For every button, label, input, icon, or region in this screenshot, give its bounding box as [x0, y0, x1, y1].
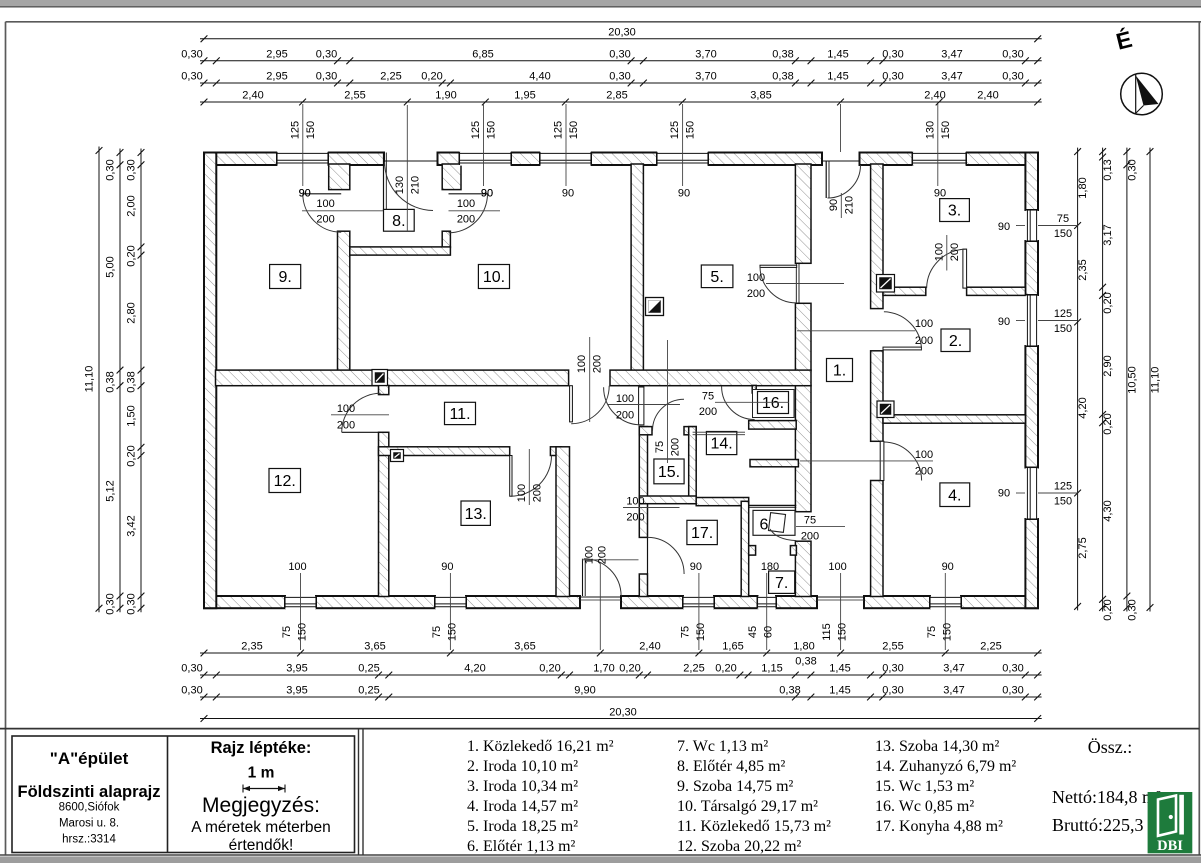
svg-text:3,70: 3,70: [695, 71, 716, 83]
svg-text:1,45: 1,45: [829, 663, 850, 675]
svg-text:10. Társalgó 29,17 m²: 10. Társalgó 29,17 m²: [677, 798, 818, 815]
svg-text:2,75: 2,75: [1077, 537, 1089, 558]
svg-text:0,20: 0,20: [1102, 599, 1114, 620]
svg-text:2.: 2.: [949, 333, 962, 350]
svg-text:Földszinti alaprajz: Földszinti alaprajz: [17, 783, 160, 801]
svg-text:0,30: 0,30: [1002, 663, 1023, 675]
svg-text:0,30: 0,30: [882, 49, 903, 61]
svg-text:0,30: 0,30: [1002, 71, 1023, 83]
svg-text:11,10: 11,10: [84, 366, 96, 393]
svg-text:17. Konyha 4,88 m²: 17. Konyha 4,88 m²: [875, 818, 1003, 835]
svg-text:Rajz léptéke:: Rajz léptéke:: [211, 739, 312, 757]
svg-text:200: 200: [531, 484, 543, 502]
svg-text:Össz.:: Össz.:: [1088, 737, 1133, 757]
svg-text:200: 200: [457, 214, 475, 226]
svg-text:6,85: 6,85: [472, 49, 493, 61]
svg-text:2,40: 2,40: [242, 90, 263, 102]
svg-text:4. Iroda 14,57 m²: 4. Iroda 14,57 m²: [467, 798, 578, 815]
svg-text:200: 200: [592, 355, 604, 373]
svg-text:1 m: 1 m: [248, 765, 275, 782]
svg-text:90: 90: [441, 561, 453, 573]
svg-text:1,95: 1,95: [514, 90, 535, 102]
svg-text:9,90: 9,90: [574, 685, 595, 697]
svg-text:150: 150: [940, 121, 952, 139]
svg-text:100: 100: [288, 561, 306, 573]
svg-text:200: 200: [626, 512, 644, 524]
svg-text:150: 150: [297, 623, 309, 641]
svg-text:90: 90: [299, 188, 311, 200]
svg-text:0,20: 0,20: [539, 663, 560, 675]
svg-text:3,95: 3,95: [286, 685, 307, 697]
svg-text:75: 75: [281, 626, 293, 638]
svg-text:15. Wc 1,53 m²: 15. Wc 1,53 m²: [875, 778, 974, 795]
svg-text:100: 100: [828, 561, 846, 573]
svg-text:100: 100: [915, 318, 933, 330]
svg-text:180: 180: [761, 561, 779, 573]
svg-text:2,90: 2,90: [1102, 355, 1114, 376]
svg-text:200: 200: [747, 288, 765, 300]
svg-text:130: 130: [924, 121, 936, 139]
svg-text:1.: 1.: [833, 363, 846, 380]
svg-text:12.: 12.: [274, 473, 296, 490]
svg-text:0,38: 0,38: [795, 656, 816, 668]
svg-text:0,30: 0,30: [181, 71, 202, 83]
svg-text:0,30: 0,30: [1002, 685, 1023, 697]
svg-text:0,25: 0,25: [358, 685, 379, 697]
svg-text:200: 200: [616, 410, 634, 422]
svg-text:0,30: 0,30: [126, 159, 138, 180]
svg-text:90: 90: [942, 561, 954, 573]
svg-text:130: 130: [394, 176, 406, 194]
svg-text:3,65: 3,65: [364, 641, 385, 653]
svg-text:125: 125: [553, 121, 565, 139]
svg-text:125: 125: [669, 121, 681, 139]
svg-text:14.: 14.: [710, 436, 732, 453]
svg-text:150: 150: [568, 121, 580, 139]
svg-text:0,30: 0,30: [1002, 49, 1023, 61]
svg-text:5,00: 5,00: [105, 256, 117, 277]
svg-text:150: 150: [446, 623, 458, 641]
svg-text:13.: 13.: [465, 506, 487, 523]
svg-text:1,80: 1,80: [1077, 177, 1089, 198]
svg-text:0,38: 0,38: [105, 371, 117, 392]
svg-text:2,95: 2,95: [266, 49, 287, 61]
svg-text:3. Iroda 10,34 m²: 3. Iroda 10,34 m²: [467, 778, 578, 795]
svg-text:90: 90: [998, 488, 1010, 500]
svg-text:3,42: 3,42: [126, 515, 138, 536]
svg-text:0,20: 0,20: [1102, 413, 1114, 434]
svg-text:125: 125: [470, 121, 482, 139]
svg-text:1,45: 1,45: [827, 49, 848, 61]
svg-text:200: 200: [597, 546, 609, 564]
svg-text:4.: 4.: [948, 487, 961, 504]
svg-text:0,20: 0,20: [715, 663, 736, 675]
svg-text:90: 90: [934, 188, 946, 200]
svg-text:Marosi u. 8.: Marosi u. 8.: [59, 818, 119, 830]
svg-text:200: 200: [699, 406, 717, 418]
svg-text:1,50: 1,50: [126, 405, 138, 426]
svg-text:150: 150: [941, 623, 953, 641]
svg-text:3,70: 3,70: [695, 49, 716, 61]
svg-text:4,30: 4,30: [1102, 500, 1114, 521]
svg-text:125: 125: [1054, 308, 1072, 320]
svg-text:0,30: 0,30: [609, 71, 630, 83]
svg-text:3,85: 3,85: [750, 90, 771, 102]
svg-text:15.: 15.: [658, 464, 680, 481]
svg-text:2,25: 2,25: [683, 663, 704, 675]
svg-text:200: 200: [801, 531, 819, 543]
svg-text:100: 100: [516, 484, 528, 502]
svg-text:150: 150: [305, 121, 317, 139]
svg-text:200: 200: [316, 214, 334, 226]
svg-text:3,47: 3,47: [941, 49, 962, 61]
svg-text:0,30: 0,30: [181, 685, 202, 697]
svg-text:150: 150: [1054, 323, 1072, 335]
svg-text:150: 150: [685, 121, 697, 139]
svg-text:2,00: 2,00: [126, 195, 138, 216]
svg-text:150: 150: [1054, 496, 1072, 508]
svg-text:3,65: 3,65: [514, 641, 535, 653]
svg-text:11.: 11.: [449, 406, 470, 423]
svg-text:20,30: 20,30: [608, 27, 636, 39]
svg-text:8. Előtér 4,85 m²: 8. Előtér 4,85 m²: [677, 758, 786, 775]
svg-text:75: 75: [926, 626, 938, 638]
svg-text:6. Előtér 1,13 m²: 6. Előtér 1,13 m²: [467, 838, 576, 855]
svg-text:0,20: 0,20: [421, 71, 442, 83]
svg-text:8.: 8.: [392, 213, 405, 230]
svg-text:3,47: 3,47: [943, 685, 964, 697]
svg-text:75: 75: [654, 441, 666, 453]
svg-text:2,55: 2,55: [882, 641, 903, 653]
svg-text:200: 200: [915, 335, 933, 347]
svg-text:100: 100: [616, 393, 634, 405]
svg-text:5,12: 5,12: [105, 480, 117, 501]
svg-text:75: 75: [431, 626, 443, 638]
svg-text:16. Wc 0,85 m²: 16. Wc 0,85 m²: [875, 798, 974, 815]
svg-text:17.: 17.: [691, 525, 713, 542]
svg-text:9. Szoba 14,75 m²: 9. Szoba 14,75 m²: [677, 778, 794, 795]
svg-text:11. Közlekedő 15,73 m²: 11. Közlekedő 15,73 m²: [677, 818, 831, 835]
svg-text:12. Szoba 20,22 m²: 12. Szoba 20,22 m²: [677, 838, 802, 855]
svg-text:90: 90: [998, 316, 1010, 328]
svg-text:90: 90: [998, 221, 1010, 233]
svg-text:11,10: 11,10: [1150, 367, 1162, 394]
svg-text:3,17: 3,17: [1102, 224, 1114, 245]
svg-text:100: 100: [316, 198, 334, 210]
svg-text:14. Zuhanyzó 6,79 m²: 14. Zuhanyzó 6,79 m²: [875, 758, 1016, 775]
svg-text:0,30: 0,30: [181, 49, 202, 61]
svg-text:7.: 7.: [775, 575, 788, 592]
svg-text:75: 75: [702, 390, 714, 402]
svg-text:5. Iroda 18,25 m²: 5. Iroda 18,25 m²: [467, 818, 578, 835]
svg-text:0,30: 0,30: [882, 71, 903, 83]
svg-text:2,85: 2,85: [606, 90, 627, 102]
svg-text:1,15: 1,15: [761, 663, 782, 675]
svg-text:200: 200: [915, 466, 933, 478]
svg-text:210: 210: [409, 176, 421, 194]
svg-text:0,30: 0,30: [105, 159, 117, 180]
svg-text:3.: 3.: [948, 203, 961, 220]
svg-text:100: 100: [933, 243, 945, 261]
svg-text:0,20: 0,20: [1102, 292, 1114, 313]
svg-text:60: 60: [763, 626, 775, 638]
svg-text:20,30: 20,30: [609, 707, 637, 719]
svg-text:100: 100: [576, 355, 588, 373]
svg-text:75: 75: [1057, 213, 1069, 225]
svg-text:0,30: 0,30: [126, 593, 138, 614]
svg-text:0,38: 0,38: [779, 685, 800, 697]
svg-text:1,65: 1,65: [722, 641, 743, 653]
svg-text:9.: 9.: [278, 269, 291, 286]
svg-text:0,20: 0,20: [619, 663, 640, 675]
svg-text:100: 100: [584, 546, 596, 564]
svg-text:0,25: 0,25: [358, 663, 379, 675]
svg-text:0,30: 0,30: [609, 49, 630, 61]
svg-text:1. Közlekedő 16,21 m²: 1. Közlekedő 16,21 m²: [467, 738, 614, 755]
svg-text:90: 90: [562, 188, 574, 200]
svg-text:150: 150: [837, 623, 849, 641]
svg-text:8600,Siófok: 8600,Siófok: [59, 802, 120, 814]
svg-text:45: 45: [747, 626, 759, 638]
svg-text:10.: 10.: [483, 269, 505, 286]
svg-text:2,40: 2,40: [924, 90, 945, 102]
svg-text:200: 200: [949, 243, 961, 261]
svg-text:4,40: 4,40: [529, 71, 550, 83]
svg-text:150: 150: [1054, 228, 1072, 240]
svg-text:3,47: 3,47: [941, 71, 962, 83]
svg-text:2,25: 2,25: [980, 641, 1001, 653]
svg-text:115: 115: [821, 623, 833, 641]
svg-text:1,70: 1,70: [593, 663, 614, 675]
svg-text:90: 90: [828, 199, 840, 211]
svg-text:125: 125: [1054, 481, 1072, 493]
svg-text:0,38: 0,38: [126, 371, 138, 392]
svg-text:150: 150: [486, 121, 498, 139]
svg-text:1,45: 1,45: [829, 685, 850, 697]
svg-text:100: 100: [626, 496, 644, 508]
svg-text:75: 75: [679, 626, 691, 638]
svg-text:6: 6: [760, 517, 769, 534]
svg-text:1,45: 1,45: [827, 71, 848, 83]
svg-text:7. Wc 1,13 m²: 7. Wc 1,13 m²: [677, 738, 768, 755]
svg-text:125: 125: [289, 121, 301, 139]
svg-text:0,38: 0,38: [772, 71, 793, 83]
svg-text:2,80: 2,80: [126, 302, 138, 323]
svg-text:0,30: 0,30: [105, 593, 117, 614]
svg-text:100: 100: [457, 198, 475, 210]
svg-text:0,20: 0,20: [126, 245, 138, 266]
svg-text:2,35: 2,35: [1077, 259, 1089, 280]
svg-text:2,35: 2,35: [241, 641, 262, 653]
svg-text:0,38: 0,38: [772, 49, 793, 61]
svg-text:1,90: 1,90: [435, 90, 456, 102]
svg-text:DBI: DBI: [1157, 838, 1183, 854]
svg-text:4,20: 4,20: [464, 663, 485, 675]
svg-text:hrsz.:3314: hrsz.:3314: [62, 834, 116, 846]
svg-text:Nettó:184,8 m²: Nettó:184,8 m²: [1052, 787, 1161, 807]
svg-text:0,30: 0,30: [316, 71, 337, 83]
svg-text:3,47: 3,47: [943, 663, 964, 675]
svg-text:90: 90: [678, 188, 690, 200]
svg-text:10,50: 10,50: [1126, 366, 1138, 394]
svg-text:2,40: 2,40: [977, 90, 998, 102]
svg-text:2,40: 2,40: [639, 641, 660, 653]
svg-text:13. Szoba 14,30 m²: 13. Szoba 14,30 m²: [875, 738, 1000, 755]
svg-text:150: 150: [695, 623, 707, 641]
svg-text:90: 90: [481, 188, 493, 200]
svg-text:1,80: 1,80: [793, 641, 814, 653]
svg-text:értendők!: értendők!: [229, 837, 294, 854]
svg-text:75: 75: [804, 514, 816, 526]
svg-text:0,30: 0,30: [316, 49, 337, 61]
svg-text:3,95: 3,95: [286, 663, 307, 675]
svg-text:2,25: 2,25: [380, 71, 401, 83]
svg-text:A méretek méterben: A méretek méterben: [191, 819, 331, 836]
svg-text:"A"épület: "A"épület: [50, 749, 129, 768]
svg-text:100: 100: [747, 272, 765, 284]
svg-text:0,13: 0,13: [1102, 159, 1114, 180]
svg-text:0,30: 0,30: [1126, 159, 1138, 180]
svg-text:0,30: 0,30: [181, 663, 202, 675]
svg-text:200: 200: [337, 420, 355, 432]
svg-text:200: 200: [670, 438, 682, 456]
svg-text:0,30: 0,30: [882, 685, 903, 697]
svg-text:0,30: 0,30: [882, 663, 903, 675]
svg-text:90: 90: [690, 561, 702, 573]
svg-text:Megjegyzés:: Megjegyzés:: [202, 794, 320, 817]
svg-text:2,95: 2,95: [266, 71, 287, 83]
svg-text:4,20: 4,20: [1077, 397, 1089, 418]
svg-text:100: 100: [337, 403, 355, 415]
svg-text:0,30: 0,30: [1126, 599, 1138, 620]
svg-text:210: 210: [843, 196, 855, 214]
svg-text:2. Iroda 10,10 m²: 2. Iroda 10,10 m²: [467, 758, 578, 775]
svg-text:16.: 16.: [762, 395, 784, 412]
svg-text:5.: 5.: [710, 269, 723, 286]
svg-text:0,20: 0,20: [126, 445, 138, 466]
svg-text:100: 100: [915, 449, 933, 461]
svg-text:2,55: 2,55: [344, 90, 365, 102]
